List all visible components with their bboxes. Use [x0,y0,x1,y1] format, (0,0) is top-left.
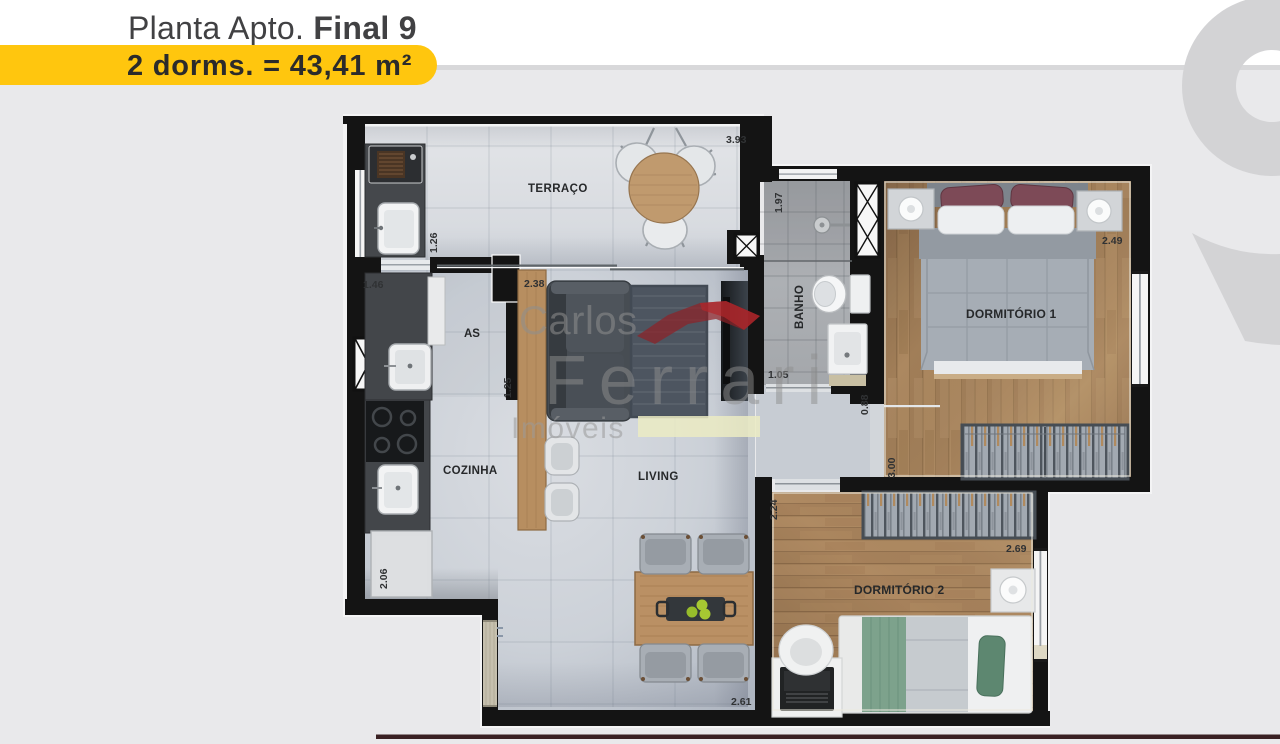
svg-text:2.61: 2.61 [731,696,752,708]
svg-text:Imóveis: Imóveis [511,412,625,445]
svg-text:2.24: 2.24 [768,499,780,520]
svg-text:3.00: 3.00 [886,457,898,478]
svg-text:AS: AS [464,328,480,340]
svg-text:0.88: 0.88 [859,394,871,415]
svg-text:DORMITÓRIO 2: DORMITÓRIO 2 [854,582,945,597]
svg-text:Carlos: Carlos [519,299,638,343]
svg-text:1.97: 1.97 [773,192,785,213]
svg-text:Planta Apto. Final 9: Planta Apto. Final 9 [128,10,417,46]
svg-text:DORMITÓRIO 1: DORMITÓRIO 1 [966,306,1057,321]
svg-text:1.25: 1.25 [502,377,514,398]
svg-text:BANHO: BANHO [794,285,806,329]
svg-text:COZINHA: COZINHA [443,465,498,477]
svg-text:2.69: 2.69 [1006,543,1027,555]
svg-text:TERRAÇO: TERRAÇO [528,183,588,195]
svg-text:1.46: 1.46 [363,279,384,291]
svg-text:Ferrari: Ferrari [544,341,834,419]
svg-text:LIVING: LIVING [638,471,679,483]
svg-text:2.38: 2.38 [524,278,545,290]
svg-text:2.06: 2.06 [378,568,390,589]
svg-text:2 dorms. = 43,41 m²: 2 dorms. = 43,41 m² [127,50,412,82]
svg-text:1.26: 1.26 [428,232,440,253]
svg-text:3.93: 3.93 [726,134,747,146]
svg-text:2.49: 2.49 [1102,235,1123,247]
